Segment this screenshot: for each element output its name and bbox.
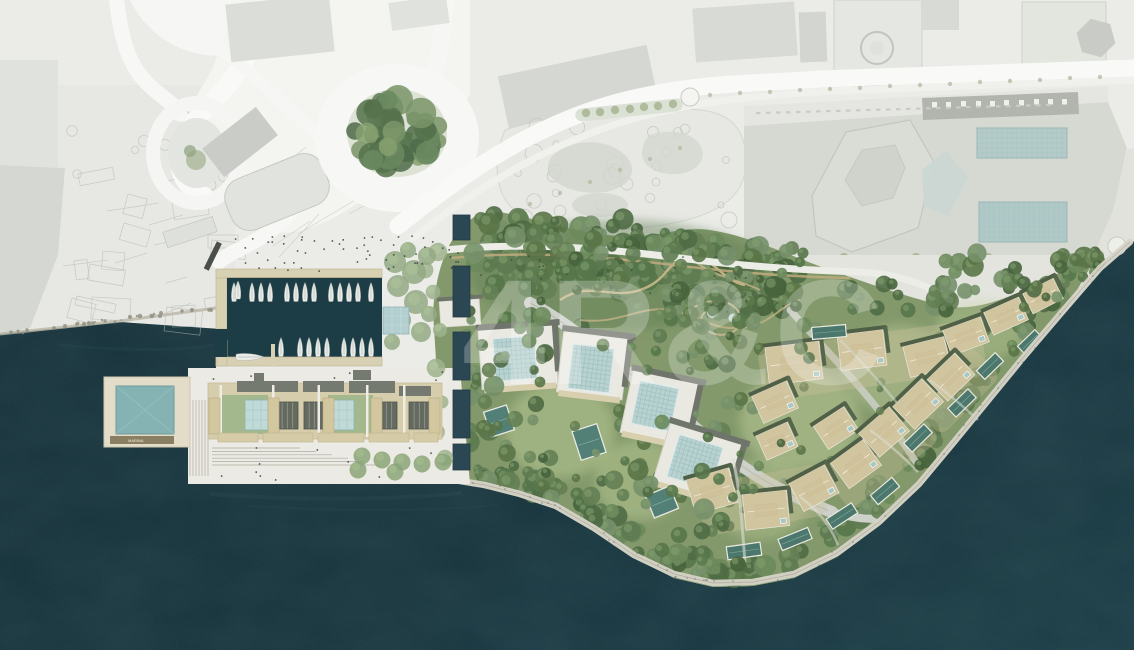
svg-text:MARINA: MARINA <box>128 438 144 443</box>
svg-text:4R&C: 4R&C <box>462 248 886 416</box>
